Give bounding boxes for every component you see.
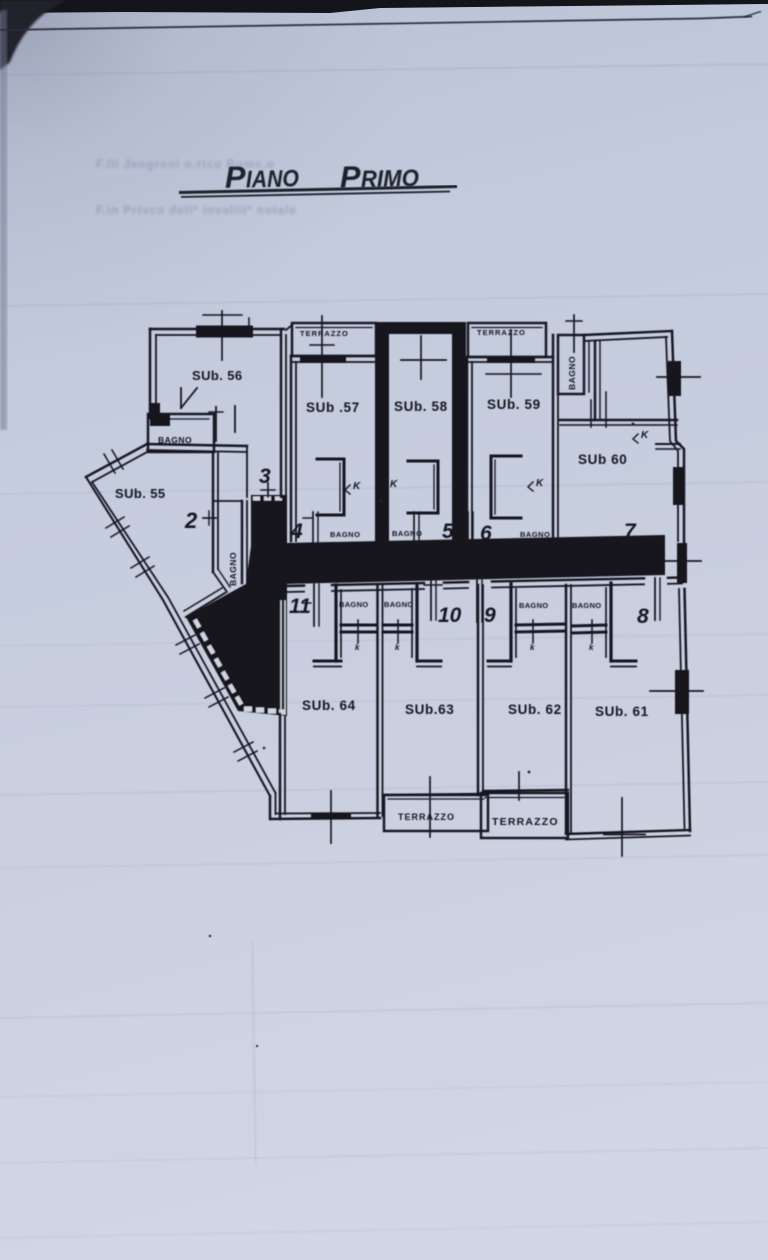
- svg-text:7: 7: [624, 520, 637, 543]
- svg-text:BAGNO: BAGNO: [572, 601, 601, 610]
- svg-text:k: k: [589, 643, 594, 652]
- svg-text:SUb. 55: SUb. 55: [115, 486, 165, 501]
- svg-text:BAGNO: BAGNO: [339, 600, 368, 609]
- svg-text:K: K: [536, 478, 544, 489]
- svg-text:2: 2: [184, 508, 198, 533]
- svg-text:SUb .57: SUb .57: [306, 400, 360, 415]
- svg-text:TERRAZZO: TERRAZZO: [398, 812, 455, 822]
- svg-text:5: 5: [442, 520, 454, 543]
- svg-text:BAGNO: BAGNO: [519, 601, 548, 610]
- svg-text:BAGNO: BAGNO: [392, 529, 422, 538]
- svg-text:SUb. 62: SUb. 62: [508, 702, 562, 717]
- svg-text:k: k: [355, 643, 360, 652]
- svg-text:8: 8: [637, 605, 649, 628]
- svg-text:BAGNO: BAGNO: [384, 600, 413, 609]
- svg-text:SUb. 61: SUb. 61: [595, 704, 649, 719]
- svg-text:9: 9: [484, 604, 496, 627]
- svg-text:SUb. 59: SUb. 59: [487, 397, 541, 412]
- svg-text:P: P: [224, 159, 246, 194]
- svg-text:K: K: [353, 481, 361, 492]
- svg-text:11: 11: [289, 595, 311, 618]
- svg-text:F.in Prtvco dell* invallit* no: F.in Prtvco dell* invallit* notale: [96, 205, 297, 217]
- svg-text:BAGNO: BAGNO: [567, 356, 577, 390]
- svg-text:6: 6: [480, 522, 492, 545]
- svg-text:TERRAZZO: TERRAZZO: [300, 329, 349, 338]
- svg-text:SUb 60: SUb 60: [578, 452, 627, 467]
- svg-text:BAGNO: BAGNO: [228, 552, 238, 586]
- svg-text:K: K: [641, 430, 649, 441]
- svg-text:TERRAZZO: TERRAZZO: [492, 816, 559, 828]
- svg-text:SUb.63: SUb.63: [405, 702, 454, 717]
- svg-text:k: k: [530, 643, 535, 652]
- svg-text:k: k: [395, 643, 400, 652]
- svg-text:3: 3: [259, 465, 271, 488]
- svg-text:K: K: [390, 479, 398, 490]
- svg-text:BAGNO: BAGNO: [330, 530, 360, 539]
- svg-text:SUb. 58: SUb. 58: [394, 399, 448, 414]
- svg-text:4: 4: [290, 520, 303, 543]
- svg-text:10: 10: [438, 604, 462, 627]
- svg-text:SUb. 64: SUb. 64: [302, 698, 356, 713]
- svg-text:SUb. 56: SUb. 56: [192, 368, 242, 383]
- svg-text:TERRAZZO: TERRAZZO: [477, 328, 526, 337]
- svg-text:BAGNO: BAGNO: [520, 530, 550, 539]
